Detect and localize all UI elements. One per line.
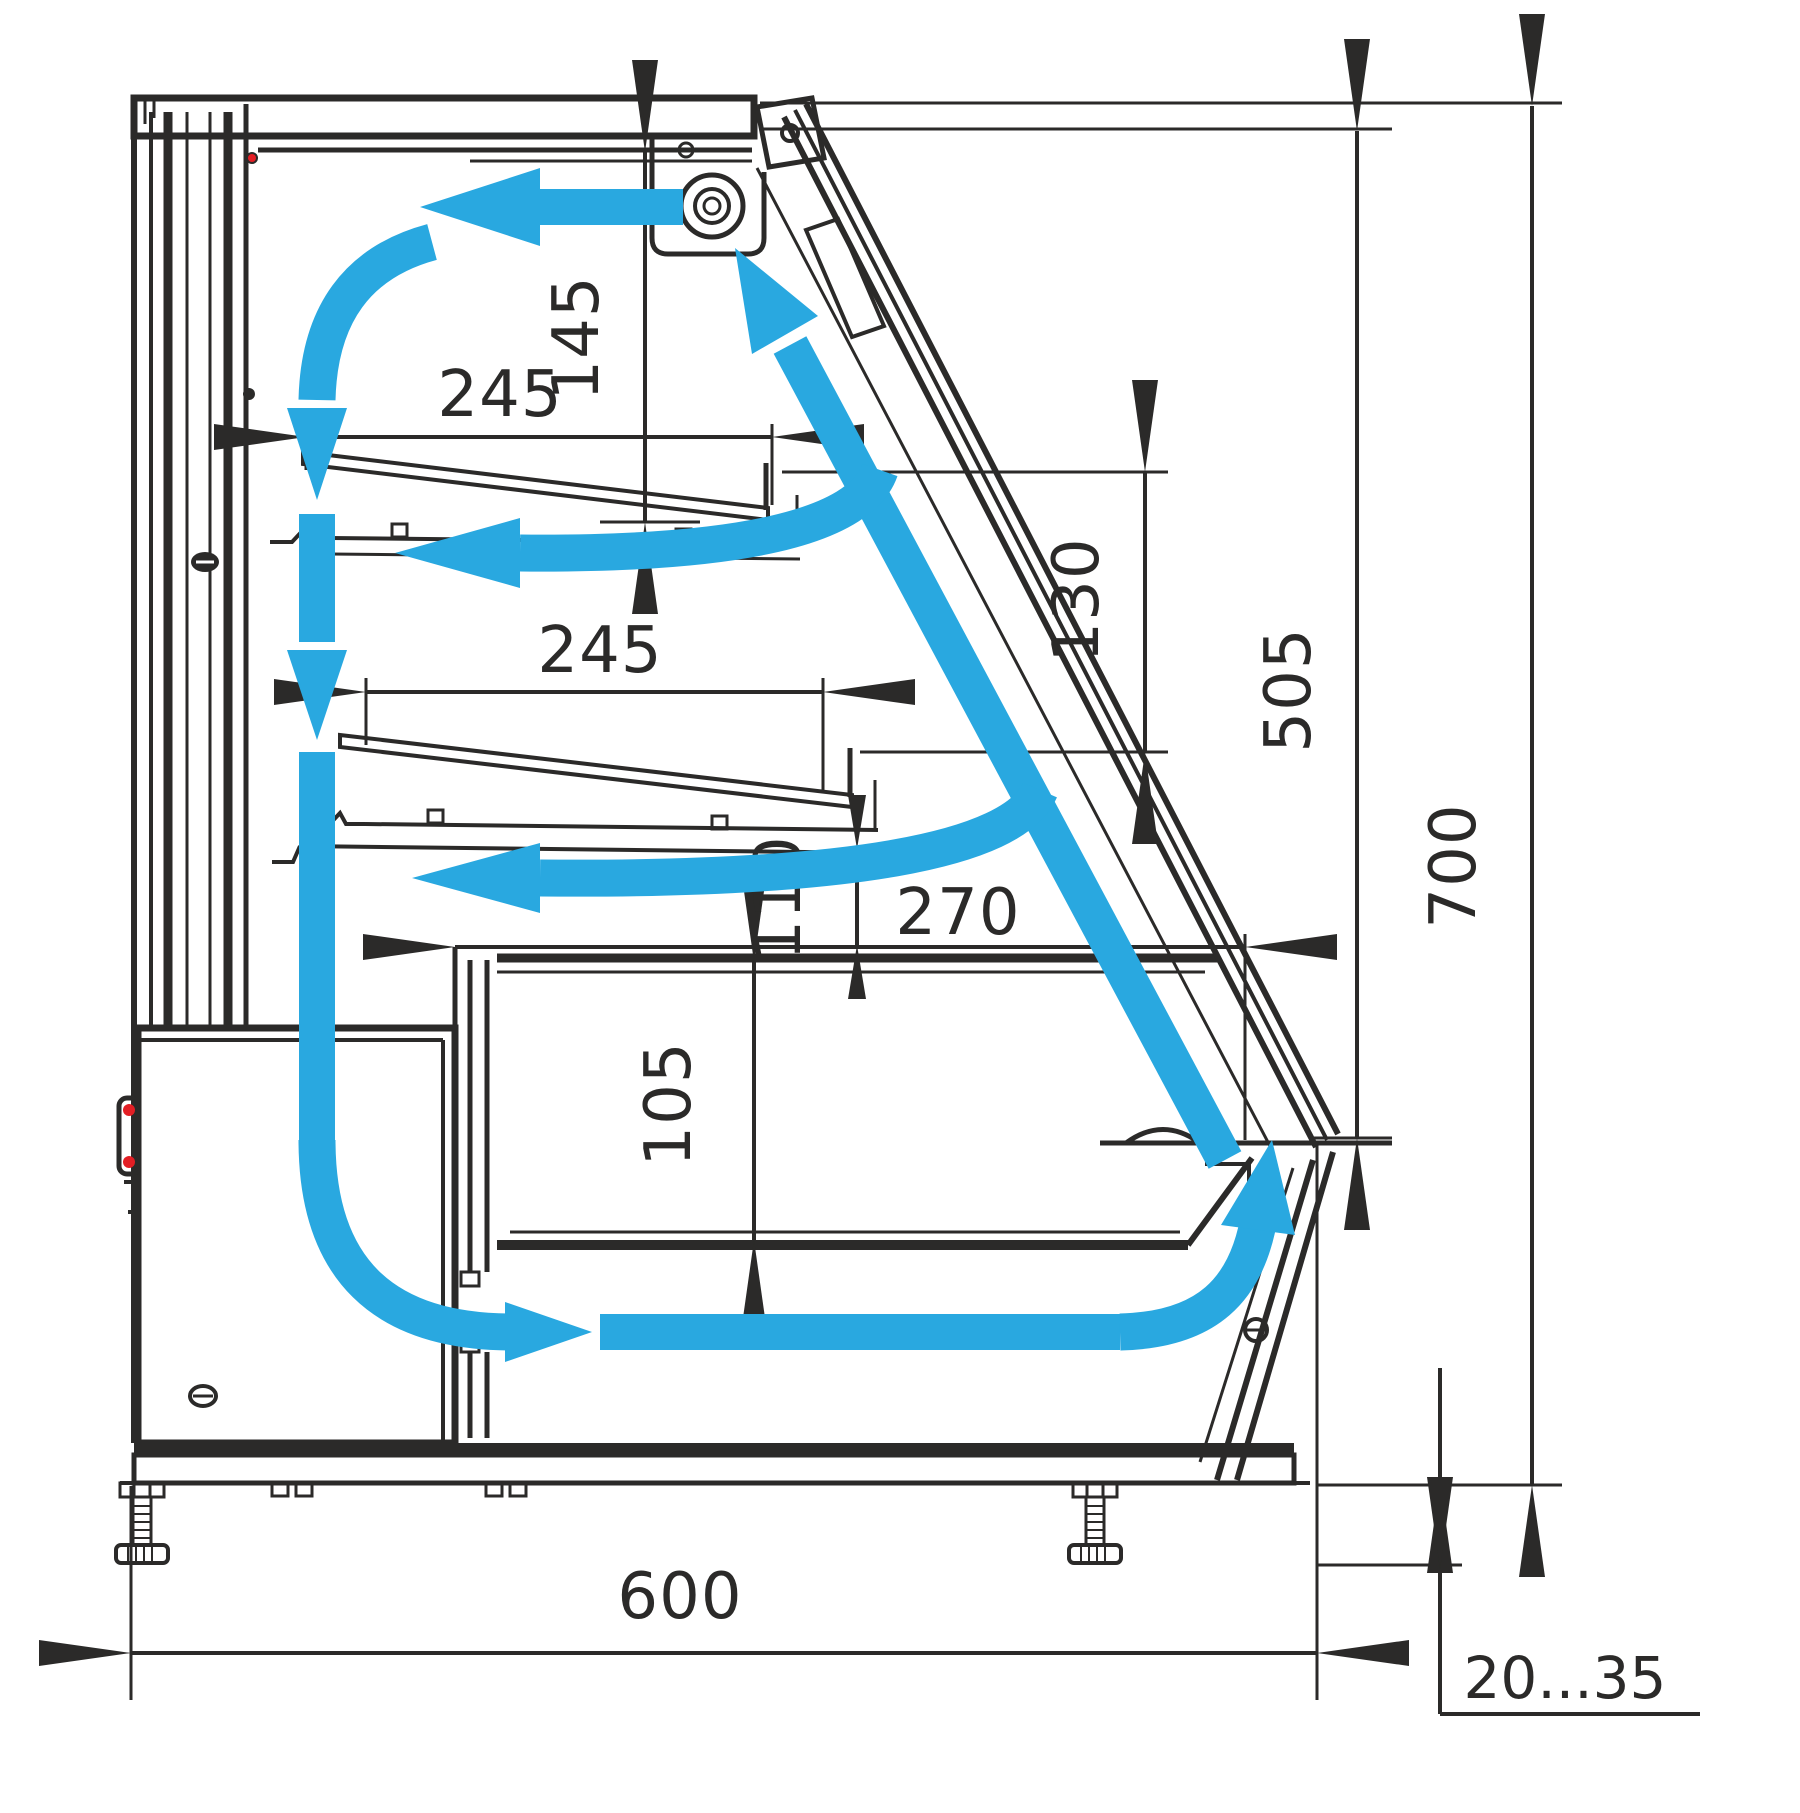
rear-air-duct <box>455 947 487 1438</box>
airflow-shelf2-return <box>540 790 1040 878</box>
airflow-back-band-1 <box>299 514 335 642</box>
dim-label-well-depth: 270 <box>895 876 1020 950</box>
display-case-cross-section: 245 145 245 130 505 700 110 270 105 600 … <box>0 0 1800 1813</box>
airflow-bottom-turn <box>317 1140 512 1332</box>
airflow-front-turn <box>1120 1212 1260 1332</box>
airflow <box>287 168 1295 1362</box>
well-floor <box>497 1158 1252 1245</box>
airflow-arrowhead-right <box>505 1302 592 1362</box>
red-sensor-dot <box>247 153 257 163</box>
dim-label-canopy-to-shelf: 145 <box>540 275 614 400</box>
dim-label-well-height: 105 <box>632 1041 706 1166</box>
dim-label-middle-shelf-depth: 245 <box>537 614 662 688</box>
dim-label-glass-opening-height: 505 <box>1252 627 1326 752</box>
dim-label-overall-depth: 600 <box>617 1560 742 1634</box>
airflow-back-band-2 <box>299 752 335 1142</box>
base-frame <box>120 1443 1310 1496</box>
adjustable-foot-right <box>1069 1483 1121 1563</box>
dim-label-shelf-front-gap: 130 <box>1040 537 1114 662</box>
airflow-arrowhead-shelf2 <box>412 843 540 913</box>
airflow-arrowhead-shelf1 <box>395 518 520 588</box>
dim-label-overall-height: 700 <box>1417 803 1491 928</box>
airflow-bottom-duct <box>600 1314 1120 1350</box>
back-panel <box>134 98 257 1443</box>
dim-label-leg-range: 20...35 <box>1464 1644 1667 1712</box>
machinery-compartment <box>119 1028 455 1443</box>
technical-drawing-page: 245 145 245 130 505 700 110 270 105 600 … <box>0 0 1800 1813</box>
airflow-arrowhead-down-2 <box>287 650 347 740</box>
airflow-arrowhead-down-1 <box>287 408 347 500</box>
adjustable-foot-left <box>116 1483 168 1563</box>
canopy <box>134 98 824 167</box>
airflow-back-turn <box>317 242 432 400</box>
fan-icon <box>681 175 743 237</box>
